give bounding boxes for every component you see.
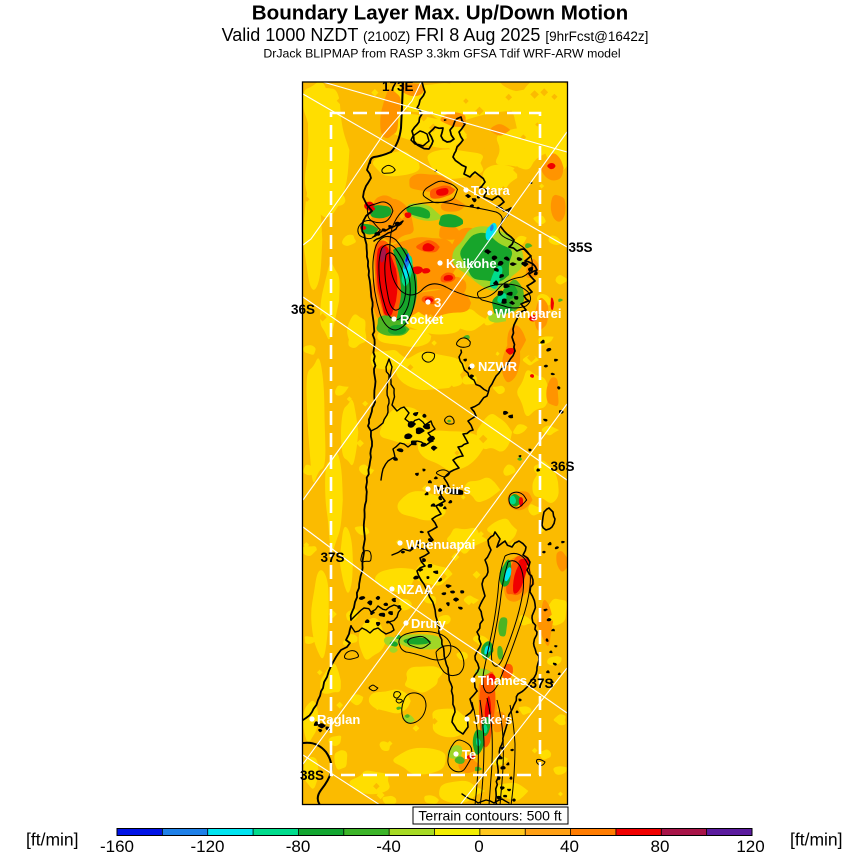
- svg-text:[ft/min]: [ft/min]: [790, 830, 843, 850]
- svg-text:Boundary Layer Max. Up/Down Mo: Boundary Layer Max. Up/Down Motion: [252, 2, 628, 25]
- svg-text:Rocket: Rocket: [400, 312, 444, 327]
- svg-text:3: 3: [434, 295, 441, 310]
- svg-text:Terrain contours: 500 ft: Terrain contours: 500 ft: [418, 808, 561, 824]
- svg-text:35S: 35S: [569, 240, 593, 255]
- svg-text:0: 0: [474, 837, 483, 856]
- svg-text:80: 80: [651, 837, 670, 856]
- svg-text:NZAA: NZAA: [397, 582, 434, 597]
- svg-text:-40: -40: [376, 837, 401, 856]
- svg-text:[ft/min]: [ft/min]: [26, 830, 79, 850]
- svg-text:-80: -80: [286, 837, 311, 856]
- svg-text:37S: 37S: [530, 676, 554, 691]
- svg-text:Whangarei: Whangarei: [495, 306, 561, 321]
- svg-text:DrJack BLIPMAP from RASP 3.3km: DrJack BLIPMAP from RASP 3.3km GFSA Tdif…: [263, 47, 620, 61]
- svg-text:36S: 36S: [551, 459, 575, 474]
- svg-text:Totara: Totara: [471, 183, 511, 198]
- svg-text:Moir's: Moir's: [433, 482, 471, 497]
- svg-text:37S: 37S: [321, 550, 345, 565]
- svg-text:173E: 173E: [382, 79, 414, 94]
- svg-text:NZWR: NZWR: [478, 359, 518, 374]
- svg-text:Jake's: Jake's: [473, 712, 512, 727]
- svg-text:Whenuapai: Whenuapai: [406, 537, 475, 552]
- svg-text:Kaikohe: Kaikohe: [446, 256, 497, 271]
- svg-text:Raglan: Raglan: [317, 712, 360, 727]
- svg-text:-120: -120: [190, 837, 224, 856]
- svg-text:Thames: Thames: [478, 673, 527, 688]
- svg-text:-160: -160: [100, 837, 134, 856]
- svg-text:120: 120: [736, 837, 764, 856]
- svg-text:Drury: Drury: [411, 616, 446, 631]
- svg-text:36S: 36S: [291, 302, 315, 317]
- svg-text:Te: Te: [462, 747, 476, 762]
- svg-text:38S: 38S: [300, 768, 324, 783]
- svg-text:40: 40: [560, 837, 579, 856]
